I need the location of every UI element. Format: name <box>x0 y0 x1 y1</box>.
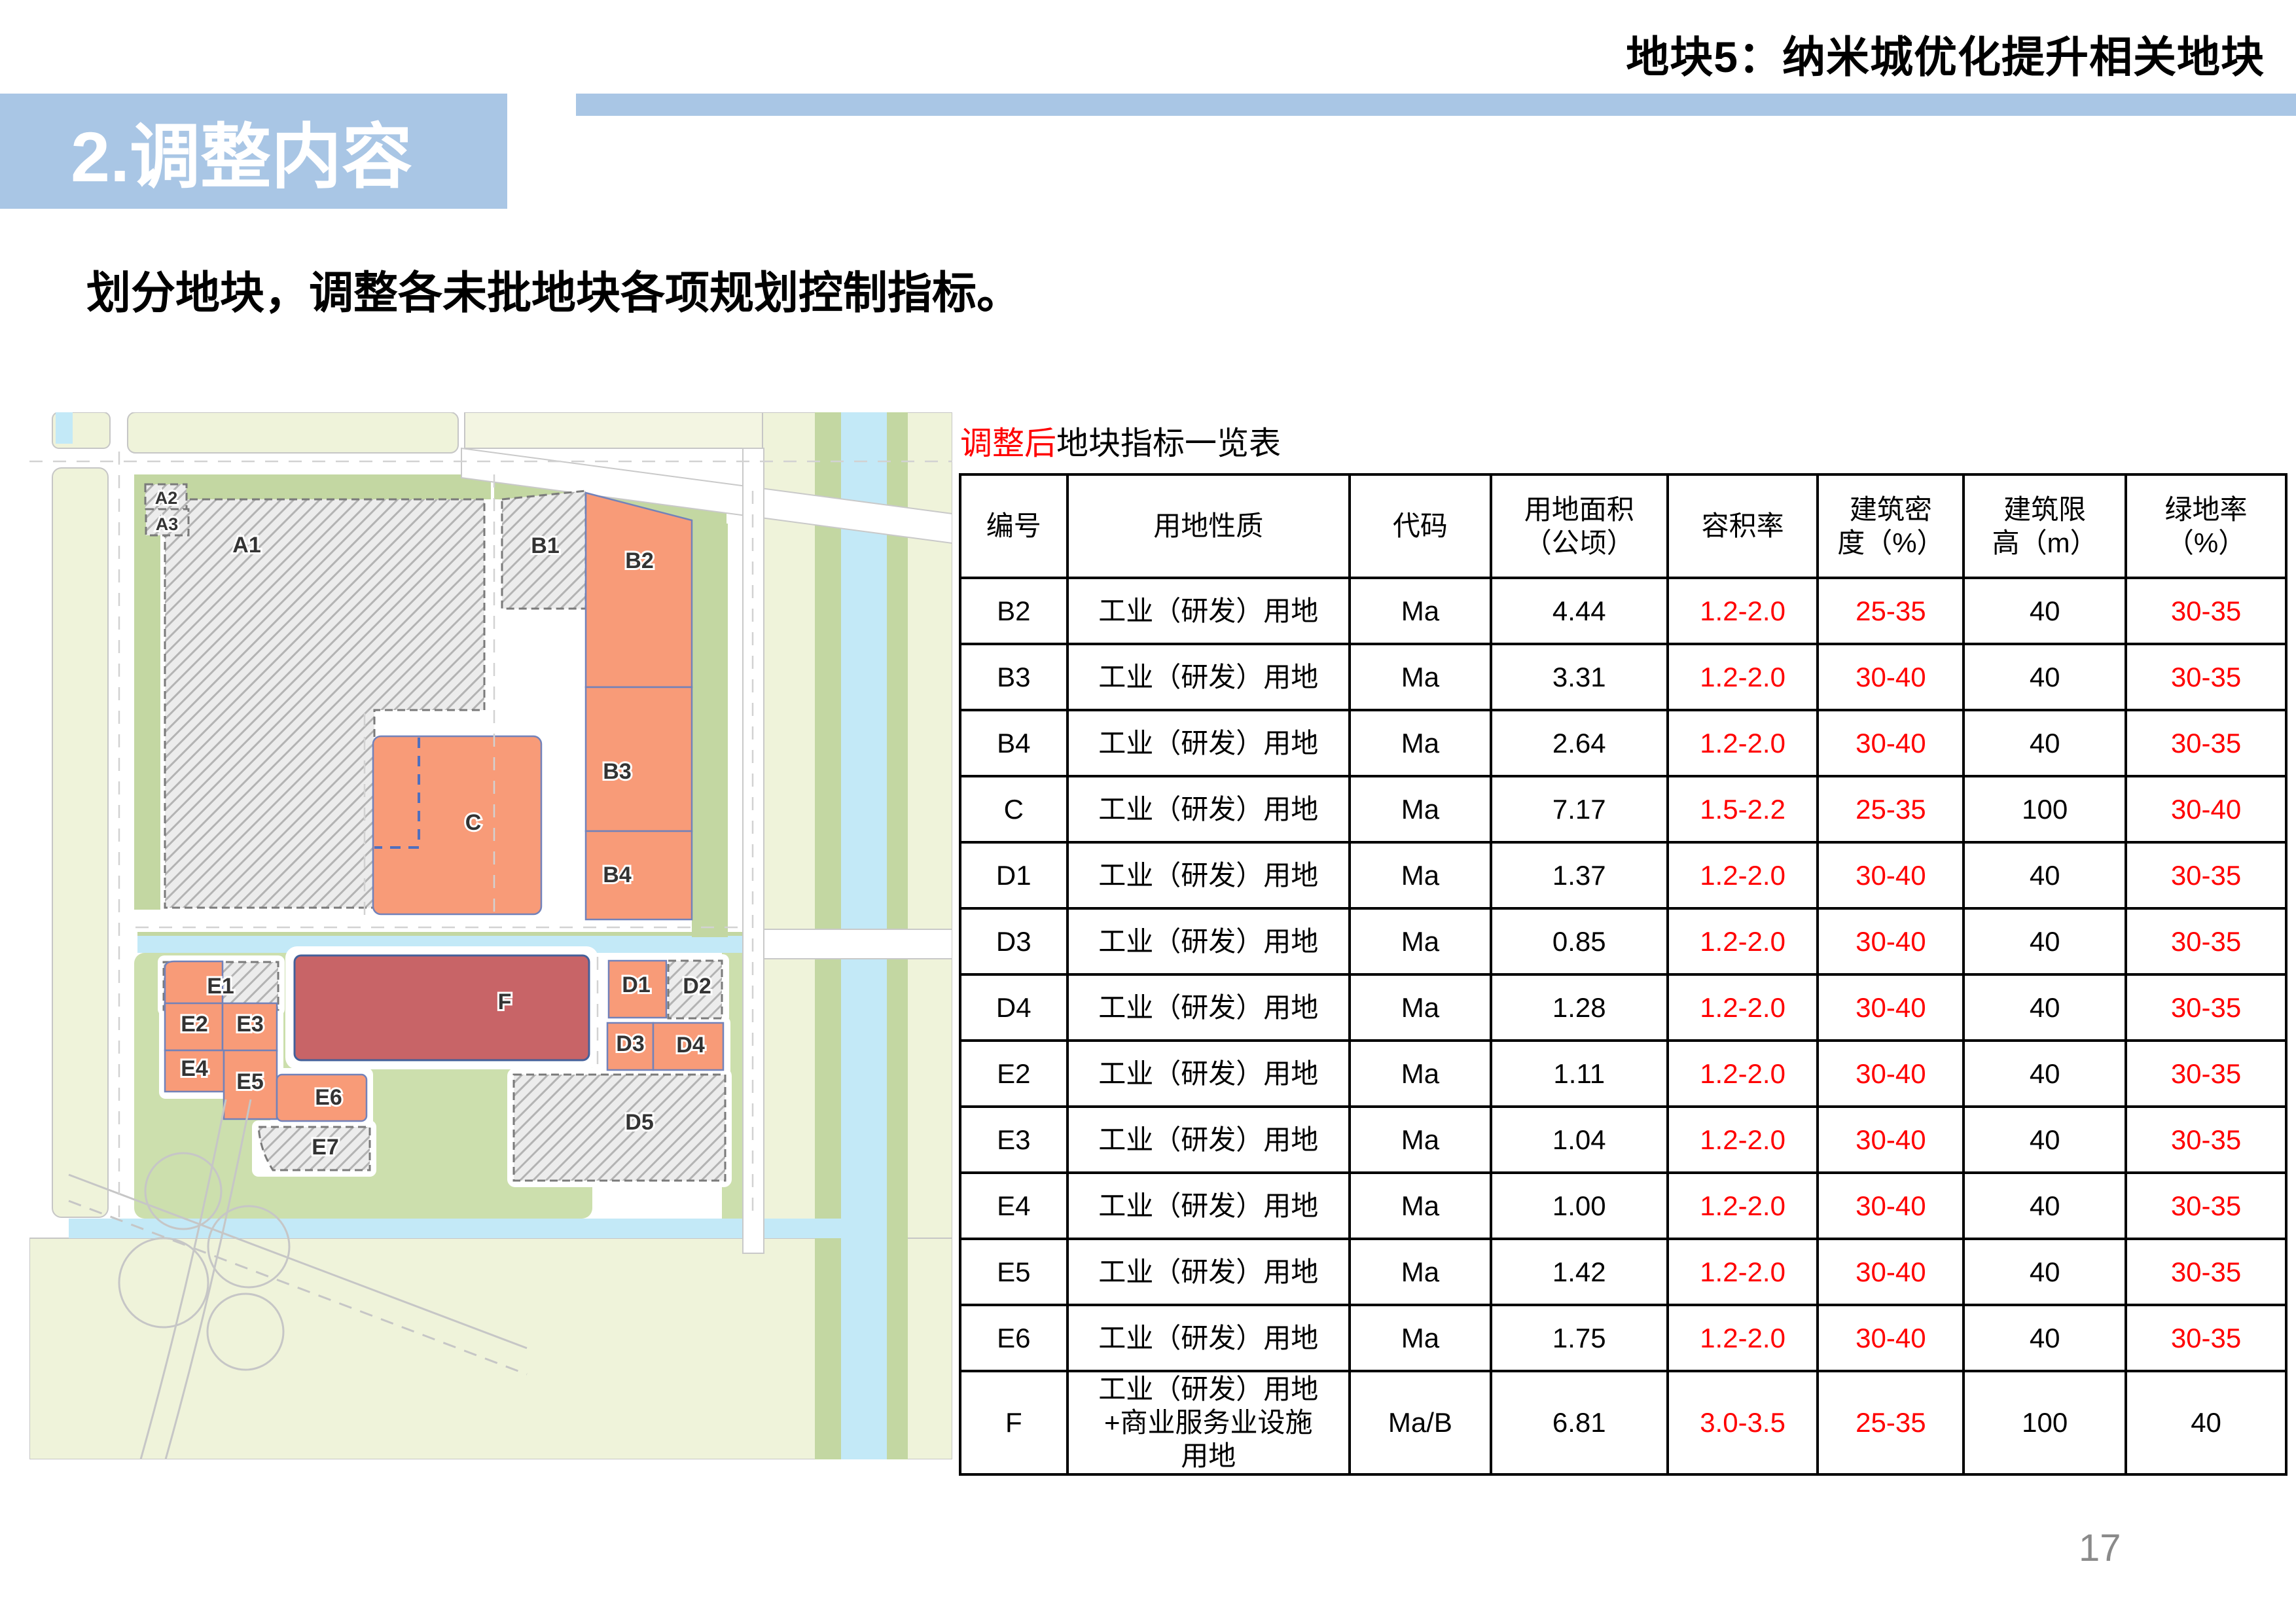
cell-far: 1.2-2.0 <box>1668 1173 1818 1239</box>
cell-height: 40 <box>1964 1173 2126 1239</box>
parcel-b2 <box>586 493 692 687</box>
column-header: 编号 <box>960 474 1067 578</box>
cell-id: E4 <box>960 1173 1067 1239</box>
cell-far: 1.2-2.0 <box>1668 578 1818 644</box>
cell-height: 100 <box>1964 1371 2126 1474</box>
cell-far: 1.5-2.2 <box>1668 776 1818 842</box>
column-header: 用地性质 <box>1067 474 1350 578</box>
cell-area: 1.37 <box>1491 842 1668 908</box>
cell-code: Ma <box>1350 1107 1491 1173</box>
cell-id: E3 <box>960 1107 1067 1173</box>
table-row: B2工业（研发）用地Ma4.441.2-2.025-354030-35 <box>960 578 2286 644</box>
cell-code: Ma <box>1350 1305 1491 1371</box>
cell-nature: 工业（研发）用地 <box>1067 908 1350 974</box>
cell-nature: 工业（研发）用地 +商业服务业设施 用地 <box>1067 1371 1350 1474</box>
cell-far: 1.2-2.0 <box>1668 644 1818 710</box>
subtitle: 划分地块，调整各未批地块各项规划控制指标。 <box>86 257 1021 321</box>
cell-code: Ma <box>1350 1173 1491 1239</box>
cell-green: 30-35 <box>2126 842 2286 908</box>
table-row: C工业（研发）用地Ma7.171.5-2.225-3510030-40 <box>960 776 2286 842</box>
cell-nature: 工业（研发）用地 <box>1067 1041 1350 1107</box>
cell-green: 30-35 <box>2126 1305 2286 1371</box>
cell-green: 30-35 <box>2126 974 2286 1041</box>
label-e5: E5 <box>236 1069 264 1094</box>
cell-area: 7.17 <box>1491 776 1668 842</box>
cell-density: 30-40 <box>1818 1107 1964 1173</box>
cell-area: 6.81 <box>1491 1371 1668 1474</box>
label-a2: A2 <box>155 488 178 508</box>
label-e3: E3 <box>236 1012 264 1037</box>
cell-green: 30-35 <box>2126 1107 2286 1173</box>
label-b4: B4 <box>603 863 632 887</box>
cell-code: Ma/B <box>1350 1371 1491 1474</box>
parcel-c <box>373 736 541 914</box>
label-d5: D5 <box>625 1110 653 1135</box>
cell-far: 1.2-2.0 <box>1668 974 1818 1041</box>
cell-far: 3.0-3.5 <box>1668 1371 1818 1474</box>
section-header: 2.调整内容 <box>0 94 507 209</box>
table-row: F工业（研发）用地 +商业服务业设施 用地Ma/B6.813.0-3.525-3… <box>960 1371 2286 1474</box>
cell-area: 1.00 <box>1491 1173 1668 1239</box>
cell-area: 1.28 <box>1491 974 1668 1041</box>
cell-density: 30-40 <box>1818 842 1964 908</box>
cell-id: F <box>960 1371 1067 1474</box>
cell-code: Ma <box>1350 1041 1491 1107</box>
cell-nature: 工业（研发）用地 <box>1067 974 1350 1041</box>
cell-area: 0.85 <box>1491 908 1668 974</box>
section-label: 2.调整内容 <box>71 100 412 202</box>
cell-density: 25-35 <box>1818 776 1964 842</box>
header-row: 编号用地性质代码用地面积 （公顷）容积率建筑密 度（%）建筑限 高（m）绿地率 … <box>960 474 2286 578</box>
column-header: 用地面积 （公顷） <box>1491 474 1668 578</box>
cell-id: C <box>960 776 1067 842</box>
cell-far: 1.2-2.0 <box>1668 908 1818 974</box>
page-number: 17 <box>2079 1526 2121 1570</box>
cell-far: 1.2-2.0 <box>1668 1239 1818 1305</box>
label-e1: E1 <box>207 974 234 999</box>
cell-area: 1.11 <box>1491 1041 1668 1107</box>
cell-nature: 工业（研发）用地 <box>1067 842 1350 908</box>
cell-nature: 工业（研发）用地 <box>1067 1107 1350 1173</box>
cell-height: 100 <box>1964 776 2126 842</box>
column-header: 绿地率 （%） <box>2126 474 2286 578</box>
cell-height: 40 <box>1964 710 2126 776</box>
cell-height: 40 <box>1964 1107 2126 1173</box>
cell-area: 4.44 <box>1491 578 1668 644</box>
cell-nature: 工业（研发）用地 <box>1067 1239 1350 1305</box>
label-f: F <box>498 990 512 1014</box>
map-canvas: A1 A2 A3 B1 B2 B3 B4 C D1 D2 D3 D4 D5 E1… <box>29 412 952 1459</box>
cell-far: 1.2-2.0 <box>1668 710 1818 776</box>
label-e6: E6 <box>315 1085 342 1110</box>
label-b1: B1 <box>531 533 559 558</box>
column-header: 建筑密 度（%） <box>1818 474 1964 578</box>
table-row: E3工业（研发）用地Ma1.041.2-2.030-404030-35 <box>960 1107 2286 1173</box>
cell-area: 3.31 <box>1491 644 1668 710</box>
cell-nature: 工业（研发）用地 <box>1067 710 1350 776</box>
cell-density: 25-35 <box>1818 1371 1964 1474</box>
cell-nature: 工业（研发）用地 <box>1067 644 1350 710</box>
label-d2: D2 <box>683 974 711 999</box>
cell-far: 1.2-2.0 <box>1668 1305 1818 1371</box>
table-row: D4工业（研发）用地Ma1.281.2-2.030-404030-35 <box>960 974 2286 1041</box>
cell-far: 1.2-2.0 <box>1668 1107 1818 1173</box>
cell-height: 40 <box>1964 1239 2126 1305</box>
cell-density: 30-40 <box>1818 1239 1964 1305</box>
cell-green: 30-35 <box>2126 1173 2286 1239</box>
cell-code: Ma <box>1350 908 1491 974</box>
cell-height: 40 <box>1964 842 2126 908</box>
cell-code: Ma <box>1350 974 1491 1041</box>
parcel-f <box>295 955 589 1060</box>
cell-id: B2 <box>960 578 1067 644</box>
label-d3: D3 <box>616 1031 644 1056</box>
cell-height: 40 <box>1964 908 2126 974</box>
cell-nature: 工业（研发）用地 <box>1067 578 1350 644</box>
label-b2: B2 <box>625 548 653 573</box>
cell-id: E2 <box>960 1041 1067 1107</box>
cell-density: 30-40 <box>1818 710 1964 776</box>
cell-area: 1.75 <box>1491 1305 1668 1371</box>
cell-density: 30-40 <box>1818 1041 1964 1107</box>
accent-bar <box>576 94 2296 116</box>
cell-height: 40 <box>1964 644 2126 710</box>
cell-far: 1.2-2.0 <box>1668 1041 1818 1107</box>
parcel-b4 <box>586 831 692 919</box>
page-title: 地块5：纳米城优化提升相关地块 <box>1626 22 2265 85</box>
cell-density: 30-40 <box>1818 644 1964 710</box>
label-b3: B3 <box>603 759 631 784</box>
cell-green: 30-35 <box>2126 1041 2286 1107</box>
table-row: B4工业（研发）用地Ma2.641.2-2.030-404030-35 <box>960 710 2286 776</box>
cell-height: 40 <box>1964 578 2126 644</box>
column-header: 代码 <box>1350 474 1491 578</box>
table-row: E2工业（研发）用地Ma1.111.2-2.030-404030-35 <box>960 1041 2286 1107</box>
cell-green: 30-35 <box>2126 710 2286 776</box>
table-row: D3工业（研发）用地Ma0.851.2-2.030-404030-35 <box>960 908 2286 974</box>
slide: 地块5：纳米城优化提升相关地块 2.调整内容 划分地块，调整各未批地块各项规划控… <box>0 0 2296 1623</box>
parcel-d5 <box>514 1075 725 1181</box>
cell-height: 40 <box>1964 1041 2126 1107</box>
cell-height: 40 <box>1964 974 2126 1041</box>
cell-density: 30-40 <box>1818 1305 1964 1371</box>
cell-code: Ma <box>1350 710 1491 776</box>
cell-id: E6 <box>960 1305 1067 1371</box>
cell-code: Ma <box>1350 644 1491 710</box>
label-a3: A3 <box>156 514 179 534</box>
cell-green: 30-35 <box>2126 578 2286 644</box>
label-e7: E7 <box>312 1135 339 1160</box>
cell-green: 30-40 <box>2126 776 2286 842</box>
cell-density: 30-40 <box>1818 1173 1964 1239</box>
cell-density: 25-35 <box>1818 578 1964 644</box>
cell-id: E5 <box>960 1239 1067 1305</box>
table-body: B2工业（研发）用地Ma4.441.2-2.025-354030-35B3工业（… <box>960 578 2286 1474</box>
label-a1: A1 <box>232 533 260 558</box>
table-row: E4工业（研发）用地Ma1.001.2-2.030-404030-35 <box>960 1173 2286 1239</box>
indicator-table: 编号用地性质代码用地面积 （公顷）容积率建筑密 度（%）建筑限 高（m）绿地率 … <box>959 473 2287 1476</box>
cell-area: 1.42 <box>1491 1239 1668 1305</box>
cell-code: Ma <box>1350 776 1491 842</box>
water-corner <box>56 412 73 444</box>
cell-area: 2.64 <box>1491 710 1668 776</box>
cell-density: 30-40 <box>1818 908 1964 974</box>
cell-code: Ma <box>1350 842 1491 908</box>
cell-density: 30-40 <box>1818 974 1964 1041</box>
cell-id: B4 <box>960 710 1067 776</box>
table-title-rest: 地块指标一览表 <box>1056 426 1281 461</box>
column-header: 建筑限 高（m） <box>1964 474 2126 578</box>
cell-far: 1.2-2.0 <box>1668 842 1818 908</box>
cell-green: 40 <box>2126 1371 2286 1474</box>
cell-id: B3 <box>960 644 1067 710</box>
land-use-map: A1 A2 A3 B1 B2 B3 B4 C D1 D2 D3 D4 D5 E1… <box>29 412 952 1459</box>
label-c: C <box>465 810 482 835</box>
cell-code: Ma <box>1350 578 1491 644</box>
label-d1: D1 <box>622 972 650 997</box>
cell-area: 1.04 <box>1491 1107 1668 1173</box>
cell-nature: 工业（研发）用地 <box>1067 776 1350 842</box>
cell-green: 30-35 <box>2126 644 2286 710</box>
table-header: 编号用地性质代码用地面积 （公顷）容积率建筑密 度（%）建筑限 高（m）绿地率 … <box>960 474 2286 578</box>
label-e2: E2 <box>181 1012 208 1037</box>
cell-green: 30-35 <box>2126 908 2286 974</box>
cell-id: D4 <box>960 974 1067 1041</box>
cell-id: D3 <box>960 908 1067 974</box>
table-row: D1工业（研发）用地Ma1.371.2-2.030-404030-35 <box>960 842 2286 908</box>
label-d4: D4 <box>676 1033 705 1058</box>
table-row: E5工业（研发）用地Ma1.421.2-2.030-404030-35 <box>960 1239 2286 1305</box>
cell-nature: 工业（研发）用地 <box>1067 1173 1350 1239</box>
cell-height: 40 <box>1964 1305 2126 1371</box>
parcel-b3 <box>586 687 692 831</box>
table-row: B3工业（研发）用地Ma3.311.2-2.030-404030-35 <box>960 644 2286 710</box>
table-title-highlight: 调整后 <box>960 426 1056 461</box>
table-title: 调整后地块指标一览表 <box>960 418 1281 464</box>
label-e4: E4 <box>181 1056 208 1081</box>
column-header: 容积率 <box>1668 474 1818 578</box>
table-row: E6工业（研发）用地Ma1.751.2-2.030-404030-35 <box>960 1305 2286 1371</box>
cell-code: Ma <box>1350 1239 1491 1305</box>
cell-green: 30-35 <box>2126 1239 2286 1305</box>
cell-id: D1 <box>960 842 1067 908</box>
cell-nature: 工业（研发）用地 <box>1067 1305 1350 1371</box>
